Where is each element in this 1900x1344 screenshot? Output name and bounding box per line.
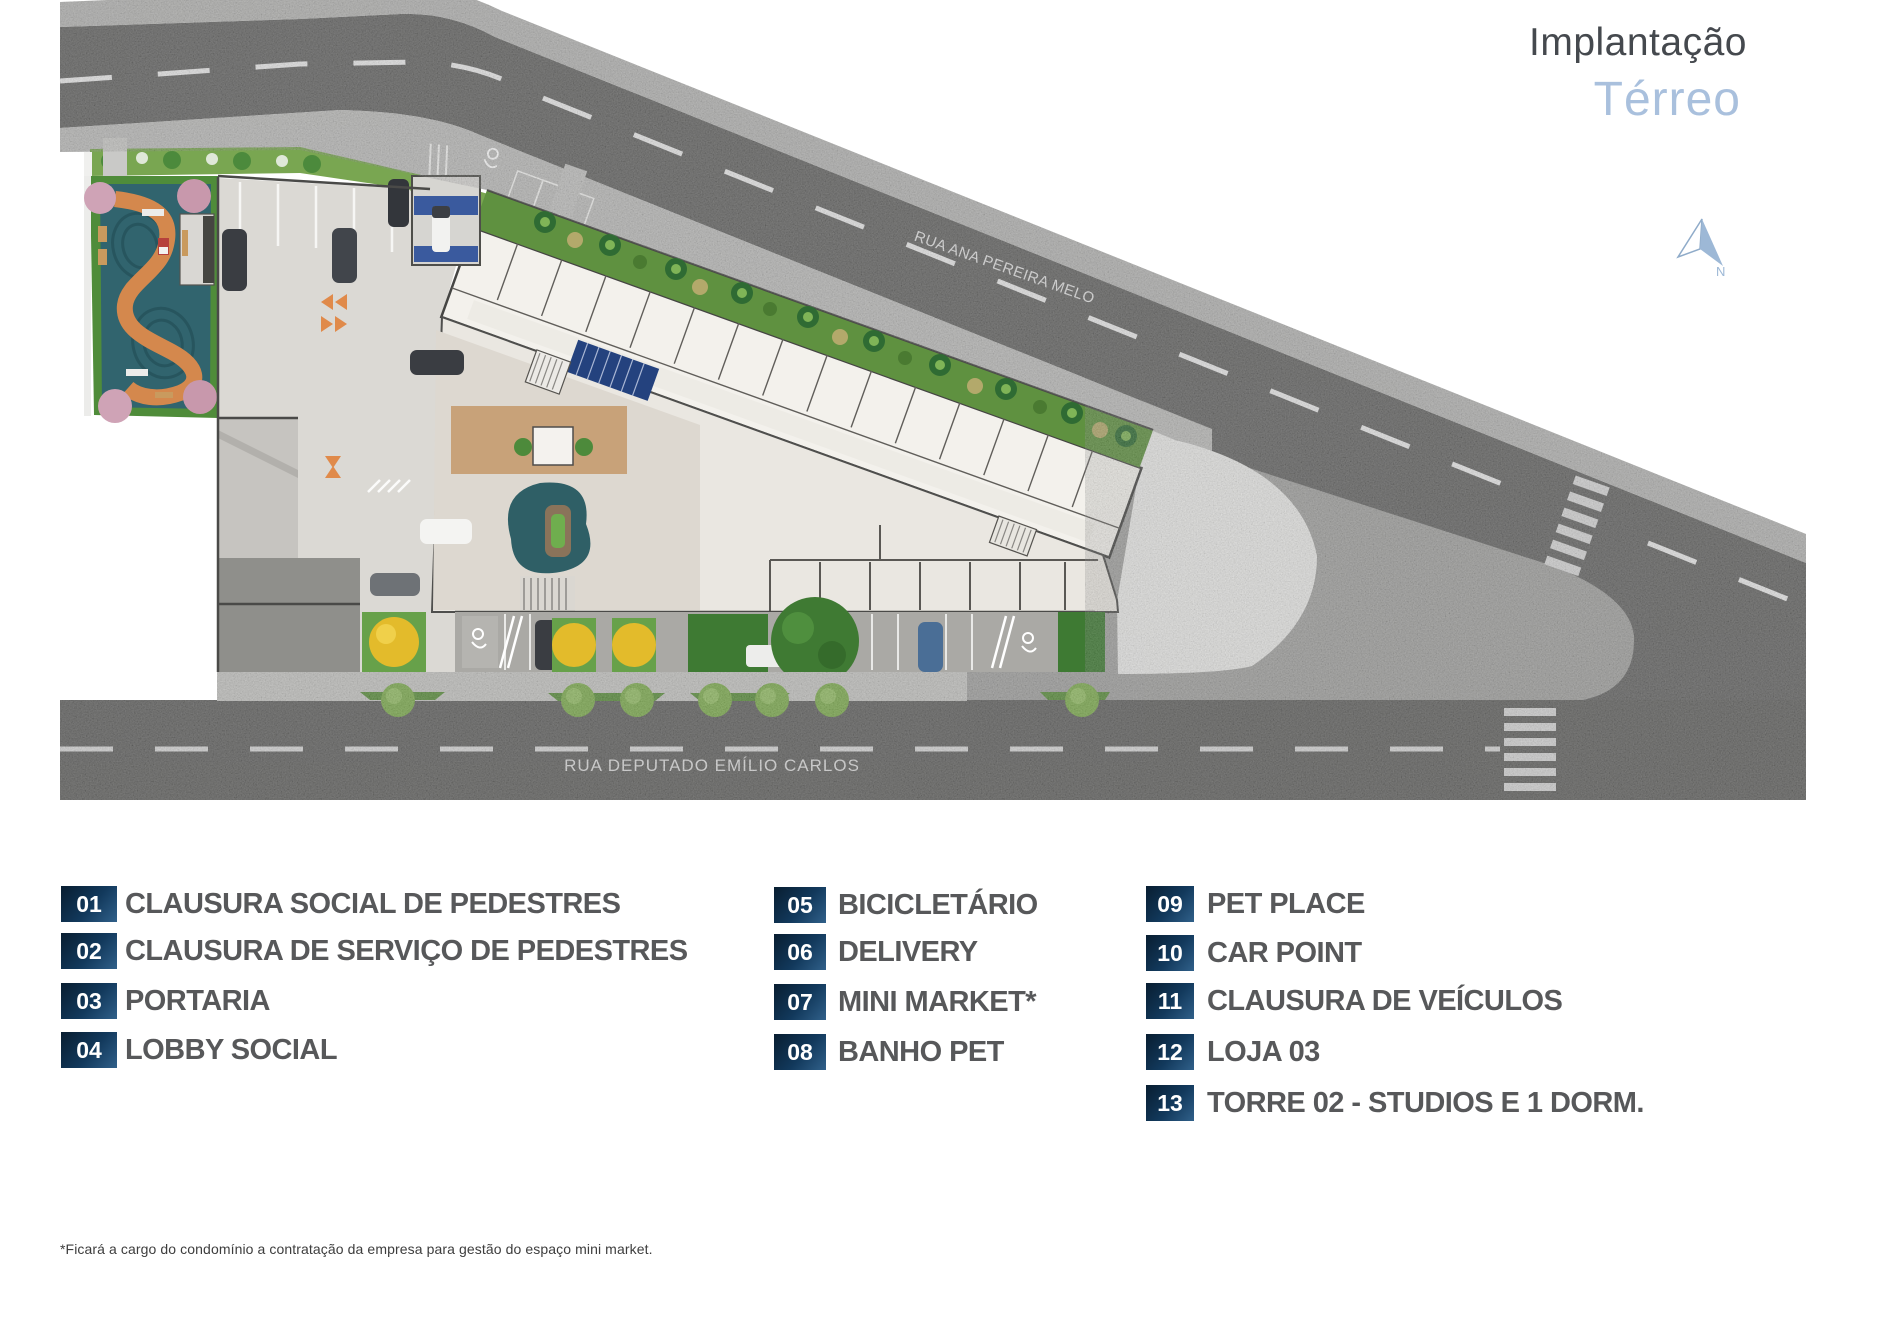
svg-text:N: N	[1716, 264, 1725, 279]
